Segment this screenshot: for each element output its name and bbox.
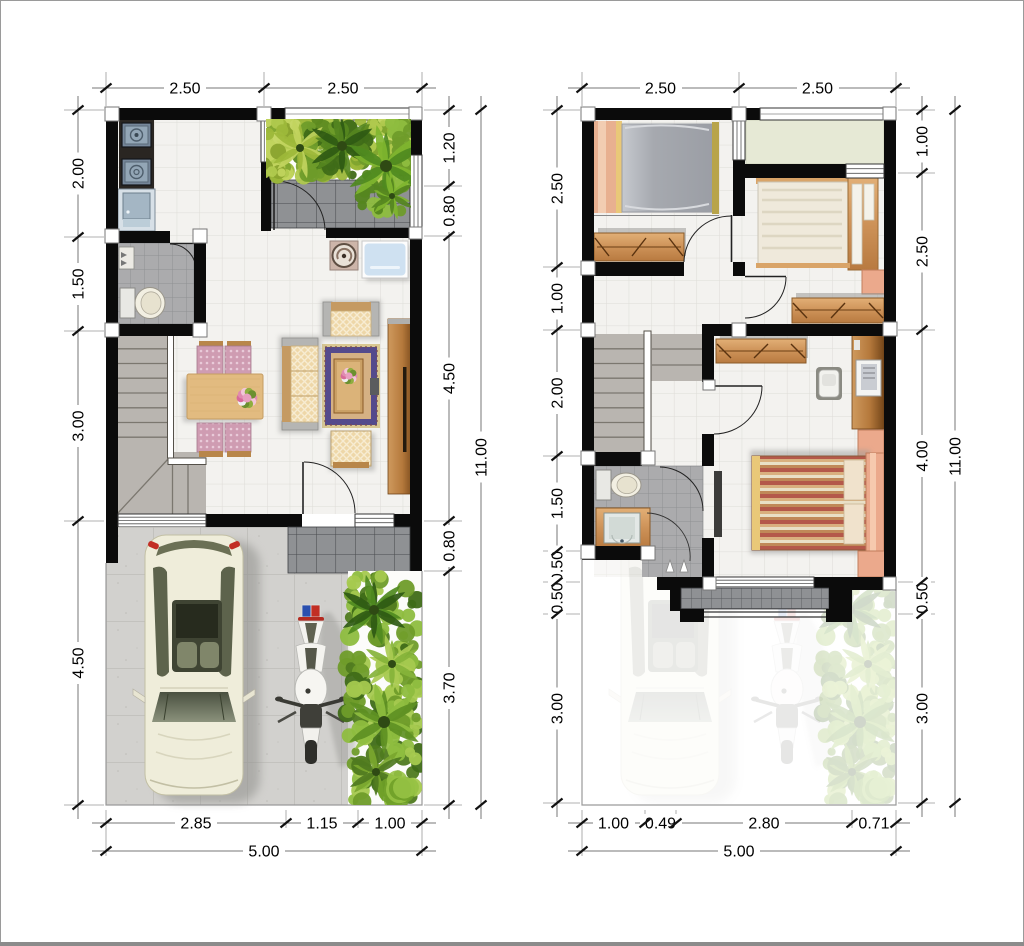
svg-text:0.80: 0.80 [442, 530, 459, 561]
svg-text:1.50: 1.50 [71, 268, 88, 299]
svg-text:4.50: 4.50 [442, 363, 459, 394]
svg-text:3.00: 3.00 [915, 693, 932, 724]
svg-text:11.00: 11.00 [474, 438, 491, 477]
svg-text:1.00: 1.00 [915, 126, 932, 157]
svg-text:4.50: 4.50 [71, 647, 88, 678]
svg-text:0.71: 0.71 [858, 816, 889, 833]
svg-text:5.00: 5.00 [723, 844, 754, 861]
svg-text:2.80: 2.80 [748, 816, 779, 833]
svg-text:3.00: 3.00 [550, 693, 567, 724]
svg-text:2.85: 2.85 [180, 816, 211, 833]
svg-text:2.50: 2.50 [327, 81, 358, 98]
svg-text:5.00: 5.00 [248, 844, 279, 861]
svg-text:1.15: 1.15 [306, 816, 337, 833]
svg-text:1.20: 1.20 [442, 132, 459, 163]
svg-text:2.50: 2.50 [169, 81, 200, 98]
svg-text:2.00: 2.00 [550, 377, 567, 408]
svg-text:3.00: 3.00 [71, 410, 88, 441]
svg-text:2.50: 2.50 [645, 81, 676, 98]
svg-text:1.00: 1.00 [374, 816, 405, 833]
svg-text:1.00: 1.00 [598, 816, 629, 833]
svg-text:1.50: 1.50 [550, 488, 567, 519]
svg-text:3.70: 3.70 [442, 672, 459, 703]
svg-text:0.80: 0.80 [442, 195, 459, 226]
svg-text:2.50: 2.50 [802, 81, 833, 98]
svg-text:2.50: 2.50 [550, 173, 567, 204]
svg-text:4.00: 4.00 [915, 440, 932, 471]
svg-text:11.00: 11.00 [948, 437, 965, 476]
svg-text:2.50: 2.50 [915, 236, 932, 267]
svg-text:1.00: 1.00 [550, 283, 567, 314]
svg-text:2.00: 2.00 [71, 158, 88, 189]
